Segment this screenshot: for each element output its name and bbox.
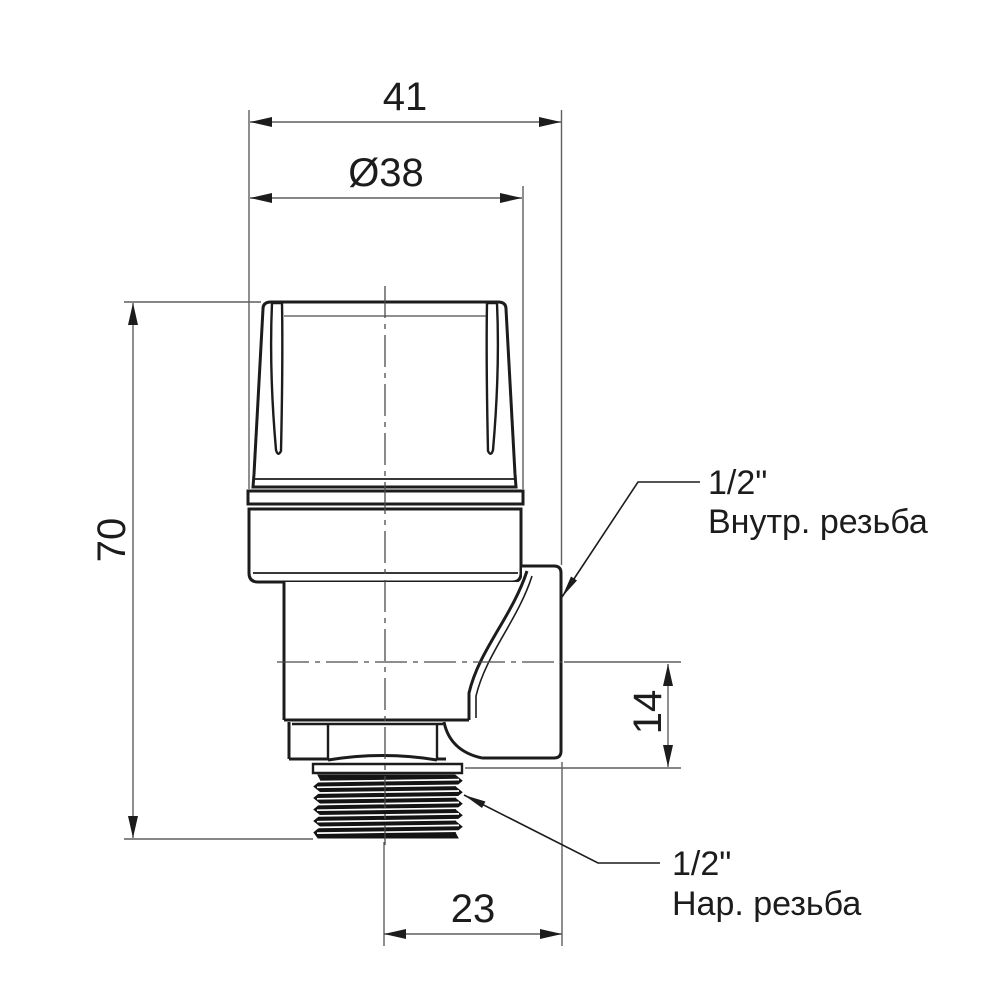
valve-drawing: 41 Ø38 70 14 23 1/2" Внутр. резьба 1/2" … [0,0,1000,1000]
dim-outlet-center-offset: 14 [626,690,670,735]
inlet-thread-label: Внутр. резьба [708,503,928,541]
dim-outlet-face-offset: 23 [451,887,496,931]
leader-arrow-inlet [562,577,577,598]
technical-drawing-canvas: 41 Ø38 70 14 23 1/2" Внутр. резьба 1/2" … [0,0,1000,1000]
dim-cap-diameter: Ø38 [348,151,424,195]
dim-total-height: 70 [90,518,134,563]
thread-collar [313,764,462,773]
inlet-size-label: 1/2" [708,464,767,502]
outlet-size-label: 1/2" [672,845,731,883]
external-thread [314,775,462,838]
valve-body [248,302,561,838]
outlet-thread-label: Нар. резьба [672,885,861,923]
dim-total-width: 41 [383,75,428,119]
leader-arrow-outlet [464,795,486,808]
